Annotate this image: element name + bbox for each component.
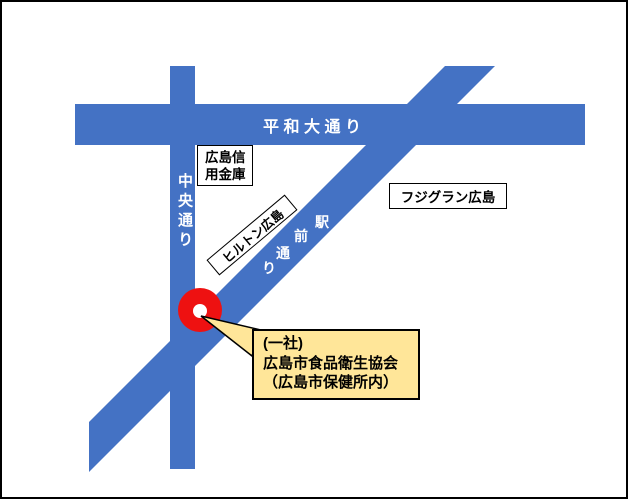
callout-box-association: (一社) 広島市食品衛生協会 （広島市保健所内） bbox=[252, 329, 420, 400]
marker-layer bbox=[2, 2, 628, 499]
callout-line3: （広島市保健所内） bbox=[263, 373, 418, 393]
callout-line1: (一社) bbox=[263, 334, 418, 354]
callout-line2: 広島市食品衛生協会 bbox=[263, 354, 418, 374]
access-map: 平和大通り 中央通り 駅 前 通 り 広島信 用金庫 フジグラン広島 ヒルトン広… bbox=[0, 0, 628, 499]
location-marker-hole bbox=[193, 304, 207, 318]
